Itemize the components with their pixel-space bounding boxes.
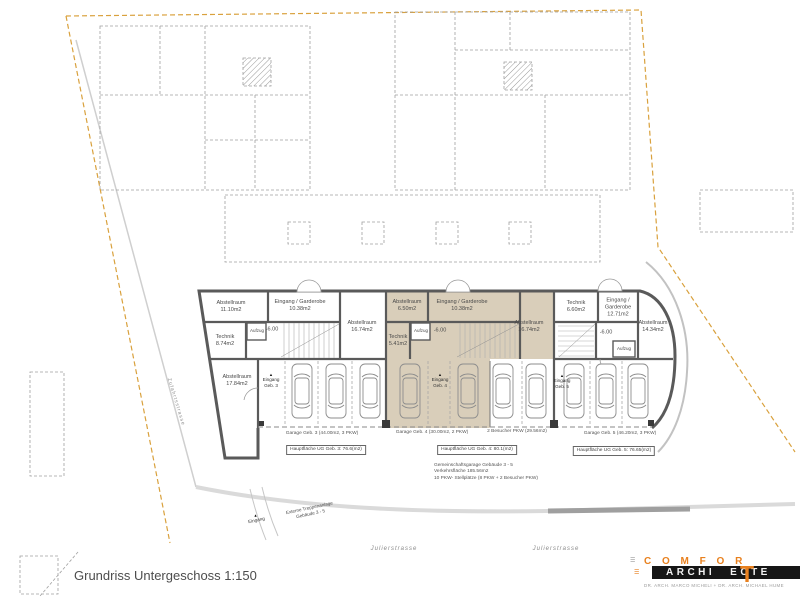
logo-bar-architecte: ARCHIECTE T <box>652 566 800 579</box>
room-label-b4-garderobe: Eingang / Garderobe10.38m2 <box>436 299 487 313</box>
page-title: Grundriss Untergeschoss 1:150 <box>74 568 257 583</box>
logo-lines-icon-accent: ☰ <box>634 570 639 576</box>
room-label-b5-technik: Technik6.60m2 <box>567 300 586 314</box>
garage-summary-text: Gemeinschaftsgarage Gebäude 3 - 5 Verkeh… <box>434 463 538 482</box>
logo-big-t: T <box>740 563 758 586</box>
entry-label-b4: ▲ EingangGeb. 4 <box>432 372 449 388</box>
visitor-parking-label: 2 Besucher PKW (29.56m2) <box>487 429 547 435</box>
logo-lines-icon: ☰ <box>630 558 635 564</box>
room-label-b3-technik: Technik8.74m2 <box>216 334 235 348</box>
architect-logo: ☰ ☰ C O M F O R ARCHIECTE T DR. ARCH. MA… <box>630 556 800 598</box>
level-marker-b3: -6.00 <box>266 327 279 334</box>
room-label-b4-technik: Technik5.41m2 <box>389 334 408 348</box>
site-boundary <box>66 10 795 543</box>
room-label-b4-abstellraum1: Abstellraum6.50m2 <box>392 299 421 313</box>
garage-label-b3: Garage Geb. 3 (44.00m2, 3 PKW) <box>286 431 359 437</box>
level-marker-b4: -6.00 <box>434 328 447 335</box>
garage-label-b5: Garage Geb. 5 (46.20m2, 3 PKW) <box>584 431 657 437</box>
elevator-label-b3: Aufzug <box>250 328 264 334</box>
elevator-label-b5: Aufzug <box>617 346 631 352</box>
entry-label-b5: ▲ EingangGeb. 5 <box>554 373 571 389</box>
level-marker-b5: -6.00 <box>600 330 613 337</box>
entry-label-b3: ▲ EingangGeb. 3 <box>263 372 280 388</box>
floor-plan-sheet: Abstellraum11.10m2 Eingang / Garderobe10… <box>0 0 800 598</box>
room-label-b3-abstellraum2: Abstellraum16.74m2 <box>347 320 376 334</box>
room-label-b5-abstellraum: Abstellraum14.34m2 <box>638 320 667 334</box>
elevator-label-b4: Aufzug <box>414 328 428 334</box>
main-area-box-b3: Hauptfläche UG Geb. 3: 76.6(m2) <box>286 445 366 455</box>
room-label-b4-abstellraum2: Abstellraum16.74m2 <box>514 320 543 334</box>
main-area-box-b4: Hauptfläche UG Geb. 4: 80.1(m2) <box>437 445 517 455</box>
street-label-julierstrasse-1: Julierstrasse <box>371 546 418 552</box>
street-label-julierstrasse-2: Julierstrasse <box>533 546 580 552</box>
main-area-box-b5: Hauptfläche UG Geb. 5: 76.65(m2) <box>573 446 655 456</box>
room-label-b3-abstellraum1: Abstellraum11.10m2 <box>216 300 245 314</box>
logo-tagline: DR. ARCH. MARCO MICHELI + DR. ARCH. MICH… <box>644 583 800 588</box>
room-label-b3-garderobe: Eingang / Garderobe10.38m2 <box>274 299 325 313</box>
room-label-b5-garderobe: Eingang / Garderobe12.71m2 <box>601 298 635 319</box>
room-label-b3-abstellraum3: Abstellraum17.84m2 <box>222 374 251 388</box>
garage-label-b4: Garage Geb. 4 (30.00m2, 2 PKW) <box>396 430 469 436</box>
